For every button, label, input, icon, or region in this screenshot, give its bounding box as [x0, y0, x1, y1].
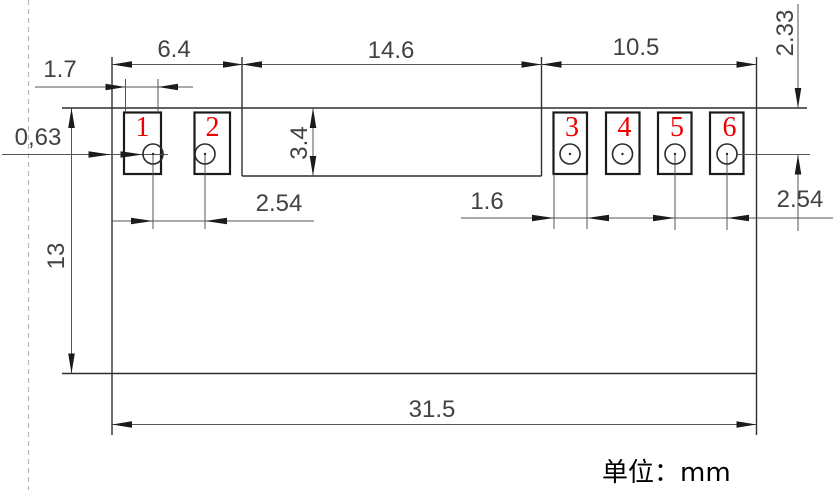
pin-holes — [143, 144, 737, 164]
dim-label-2.54-left: 2.54 — [256, 190, 303, 217]
pad-number-1: 1 — [136, 112, 150, 143]
pad-number-3: 3 — [565, 112, 579, 143]
dimension-labels: 6.4 14.6 10.5 1.7 0,63 2.33 3.4 13 2.54 … — [15, 10, 824, 423]
pad-number-5: 5 — [670, 112, 684, 143]
dim-label-14.6: 14.6 — [368, 37, 415, 64]
dim-label-10.5: 10.5 — [613, 34, 660, 61]
dim-label-2.54-right: 2.54 — [777, 186, 824, 213]
pad-number-6: 6 — [723, 112, 737, 143]
dim-label-1.7: 1.7 — [43, 56, 76, 83]
pad-number-2: 2 — [206, 112, 220, 143]
dim-label-0.63: 0,63 — [15, 124, 62, 151]
component-body-outline — [62, 57, 807, 435]
dim-label-13: 13 — [43, 243, 70, 270]
dimension-lines — [2, 4, 833, 425]
unit-note: 单位：mm — [602, 458, 731, 488]
dimension-drawing-page: 6.4 14.6 10.5 1.7 0,63 2.33 3.4 13 2.54 … — [0, 0, 836, 490]
dim-label-6.4: 6.4 — [157, 36, 190, 63]
pad-number-4: 4 — [618, 112, 632, 143]
dim-label-2.33: 2.33 — [772, 10, 799, 57]
dim-label-3.4: 3.4 — [286, 126, 313, 159]
dim-label-31.5: 31.5 — [409, 396, 456, 423]
dim-label-1.6: 1.6 — [470, 188, 503, 215]
footprint-dimension-drawing: 6.4 14.6 10.5 1.7 0,63 2.33 3.4 13 2.54 … — [0, 0, 836, 490]
